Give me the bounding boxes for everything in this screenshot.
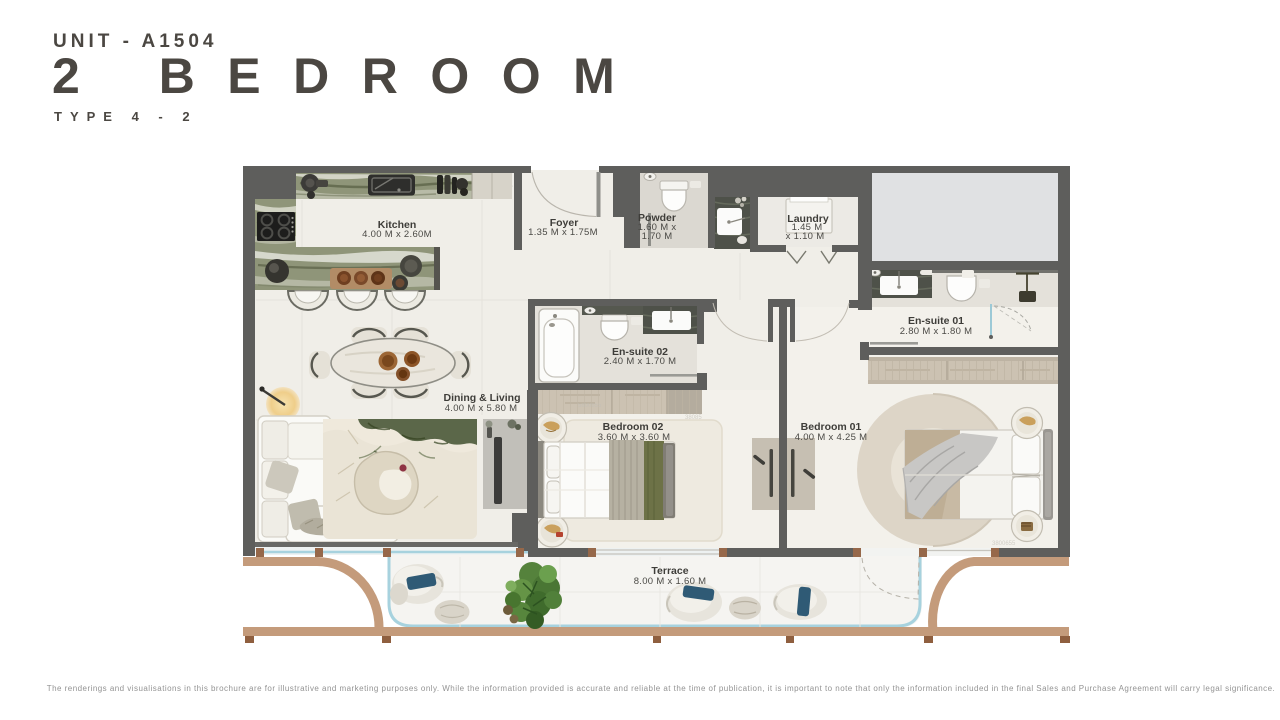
svg-text:4.00 M x 4.25 M: 4.00 M x 4.25 M (795, 432, 868, 443)
svg-text:4.00 M x 2.60M: 4.00 M x 2.60M (362, 229, 432, 240)
svg-text:4.00 M x 5.80 M: 4.00 M x 5.80 M (445, 403, 518, 414)
svg-text:5800855: 5800855 (578, 403, 602, 409)
svg-text:TYPE 4 - 2: TYPE 4 - 2 (54, 109, 198, 124)
svg-text:2.80 M x 1.80 M: 2.80 M x 1.80 M (900, 326, 973, 337)
svg-text:1.35 M x 1.75M: 1.35 M x 1.75M (528, 227, 598, 238)
svg-text:x 1.10 M: x 1.10 M (786, 231, 825, 242)
svg-text:2.40 M x 1.70 M: 2.40 M x 1.70 M (604, 356, 677, 367)
svg-text:3800655: 3800655 (992, 541, 1016, 547)
svg-text:2 BEDROOM: 2 BEDROOM (52, 48, 647, 104)
svg-text:The renderings and visualisati: The renderings and visualisations in thi… (47, 684, 1276, 693)
svg-text:8.00 M x 1.60 M: 8.00 M x 1.60 M (634, 576, 707, 587)
svg-text:3.60 M x 3.60 M: 3.60 M x 3.60 M (598, 432, 671, 443)
svg-text:38085: 38085 (685, 415, 702, 421)
svg-text:1.70 M: 1.70 M (642, 231, 673, 242)
